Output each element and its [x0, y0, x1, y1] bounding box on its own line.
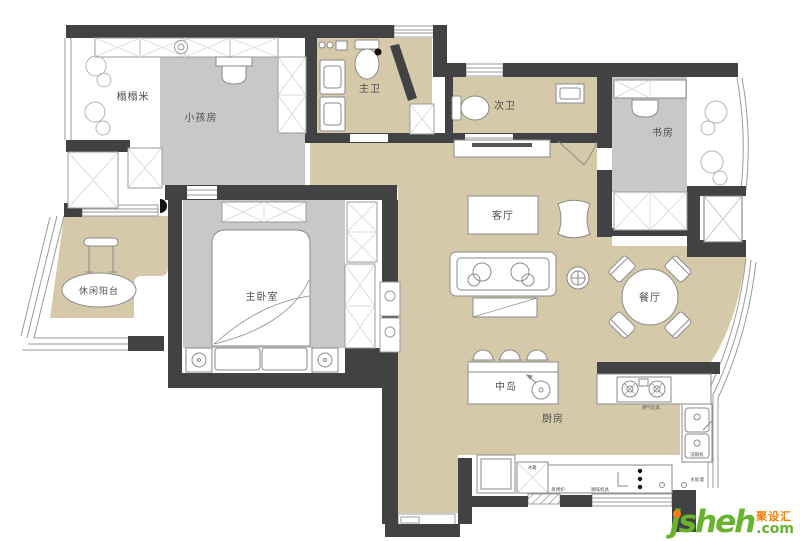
- elevator-shaft: [704, 196, 742, 242]
- floorplan-page: 榻榻米 小孩房 主卫 次卫 书房 客厅 休闲阳台 主卧室 餐厅 中岛 厨房 冰箱…: [0, 0, 800, 541]
- bath-top-window: [394, 26, 434, 37]
- label-coffee-machine: 咖啡机具: [591, 486, 609, 493]
- nightstand-left: [186, 348, 212, 372]
- bed-pillow-right: [262, 348, 307, 370]
- study-bottom-closet: [614, 192, 687, 230]
- kids-desk: [216, 57, 252, 66]
- label-master-bath: 主卫: [359, 83, 381, 95]
- label-dishwasher: 洗碗机: [690, 451, 704, 458]
- study-chair: [632, 100, 658, 117]
- island-stools: [471, 350, 549, 360]
- kids-right-closet: [278, 57, 306, 133]
- brand-tld-text: .com: [756, 522, 794, 536]
- label-study: 书房: [652, 126, 674, 139]
- label-gas-stove: 燃气灶具: [642, 404, 660, 411]
- tv: [472, 143, 532, 147]
- label-kids-room: 小孩房: [185, 111, 218, 124]
- kitchen-bottom-window: [592, 494, 672, 506]
- floorplan-drawing: 榻榻米 小孩房 主卫 次卫 书房 客厅 休闲阳台 主卧室 餐厅 中岛 厨房 冰箱…: [0, 0, 800, 541]
- label-master-bedroom: 主卧室: [246, 290, 279, 303]
- gas-stove: [617, 377, 671, 402]
- brand-wordmark: jsheh: [670, 509, 754, 537]
- bed: [212, 230, 310, 346]
- label-balcony: 休闲阳台: [79, 285, 119, 297]
- nightstand-right: [312, 348, 338, 372]
- bedroom-right-closet-b: [345, 264, 375, 348]
- label-dining: 餐厅: [639, 291, 661, 304]
- second-bath-vanity: [556, 84, 584, 103]
- label-tatami: 榻榻米: [117, 90, 150, 103]
- bedroom-wardrobe: [222, 202, 306, 222]
- kids-chair: [222, 66, 246, 84]
- second-bath-toilet: [452, 96, 489, 120]
- brand-dot-icon: [673, 510, 681, 518]
- kitchen-counter-bottom: [548, 465, 687, 493]
- label-island: 中岛: [495, 380, 517, 393]
- label-living: 客厅: [492, 209, 514, 222]
- bedroom-right-closet-a: [347, 202, 377, 262]
- label-steam-oven: 蒸烤炉: [551, 486, 565, 493]
- hall-closet-right: [128, 148, 162, 188]
- bed-pillow-left: [215, 348, 260, 370]
- kitchen-counter-top: [597, 374, 711, 404]
- top-wardrobe-strip: [95, 38, 278, 57]
- shower-cell: [410, 104, 434, 134]
- brand-logo[interactable]: jsheh 聚设汇 .com: [670, 509, 794, 537]
- study-balcony-window: [737, 78, 748, 190]
- label-fridge: 冰箱: [528, 464, 537, 471]
- balcony-door-pivot: [160, 199, 167, 213]
- fridge: [477, 455, 515, 493]
- secondbath-top-window: [466, 64, 503, 76]
- balcony-table-top: [84, 238, 118, 246]
- hall-closet-left: [68, 152, 118, 208]
- label-kitchen: 厨房: [542, 412, 564, 425]
- living-plant: [567, 267, 589, 289]
- sofa: [450, 252, 556, 296]
- sofa-bench: [473, 298, 537, 317]
- tatami-window: [65, 38, 71, 140]
- tatami-plants: [85, 56, 111, 135]
- brand-text: jsheh: [670, 504, 754, 540]
- label-second-bath: 次卫: [494, 99, 516, 112]
- study-balcony-plants: [701, 101, 727, 185]
- ottoman: [558, 200, 590, 238]
- label-water-unit: 水处理: [690, 476, 704, 483]
- tv-cabinet: [454, 140, 550, 157]
